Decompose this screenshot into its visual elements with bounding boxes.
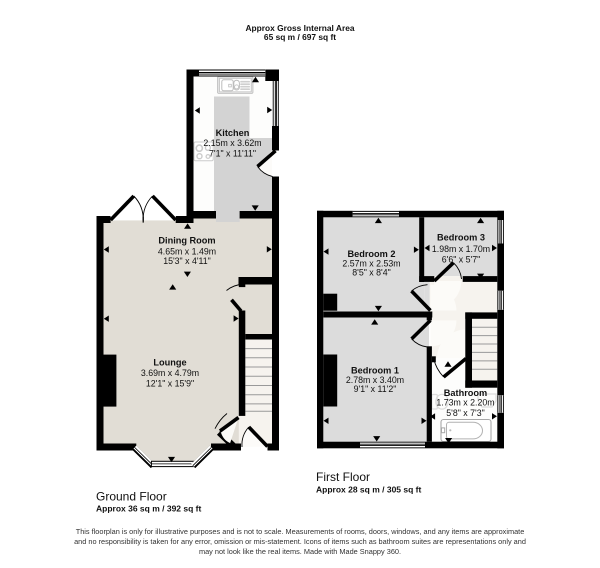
svg-text:2.15m x 3.62m: 2.15m x 3.62m — [203, 138, 261, 148]
svg-text:First Floor: First Floor — [316, 470, 370, 484]
svg-text:and no responsibility is taken: and no responsibility is taken for any e… — [74, 537, 526, 546]
svg-text:Bedroom 3: Bedroom 3 — [437, 233, 485, 243]
svg-text:8'5" x 8'4": 8'5" x 8'4" — [352, 268, 390, 278]
svg-text:15'3" x 4'11": 15'3" x 4'11" — [163, 256, 211, 266]
svg-text:4.65m x 1.49m: 4.65m x 1.49m — [158, 246, 216, 256]
svg-text:Dining Room: Dining Room — [158, 235, 215, 245]
svg-text:Kitchen: Kitchen — [216, 128, 250, 138]
svg-text:This floorplan is only for ill: This floorplan is only for illustrative … — [76, 527, 525, 536]
svg-text:1.98m x 1.70m: 1.98m x 1.70m — [432, 244, 490, 254]
svg-text:3.69m x 4.79m: 3.69m x 4.79m — [141, 368, 199, 378]
svg-text:Approx 36 sq m / 392 sq ft: Approx 36 sq m / 392 sq ft — [96, 504, 202, 514]
svg-text:65 sq m / 697 sq ft: 65 sq m / 697 sq ft — [264, 32, 336, 42]
svg-text:9'1" x 11'2": 9'1" x 11'2" — [354, 384, 397, 394]
svg-text:5'8" x 7'3": 5'8" x 7'3" — [446, 408, 484, 418]
svg-text:Approx 28 sq m / 305 sq ft: Approx 28 sq m / 305 sq ft — [316, 485, 422, 495]
svg-text:6'6" x 5'7": 6'6" x 5'7" — [442, 254, 480, 264]
svg-text:may not look like the real ite: may not look like the real items. Made w… — [199, 547, 401, 556]
svg-text:Lounge: Lounge — [153, 357, 186, 367]
svg-text:7'1" x 11'11": 7'1" x 11'11" — [209, 148, 256, 158]
svg-text:Ground Floor: Ground Floor — [96, 490, 167, 504]
svg-text:1.73m x 2.20m: 1.73m x 2.20m — [436, 398, 494, 408]
svg-text:12'1" x 15'9": 12'1" x 15'9" — [146, 378, 194, 388]
svg-text:Bathroom: Bathroom — [444, 388, 487, 398]
